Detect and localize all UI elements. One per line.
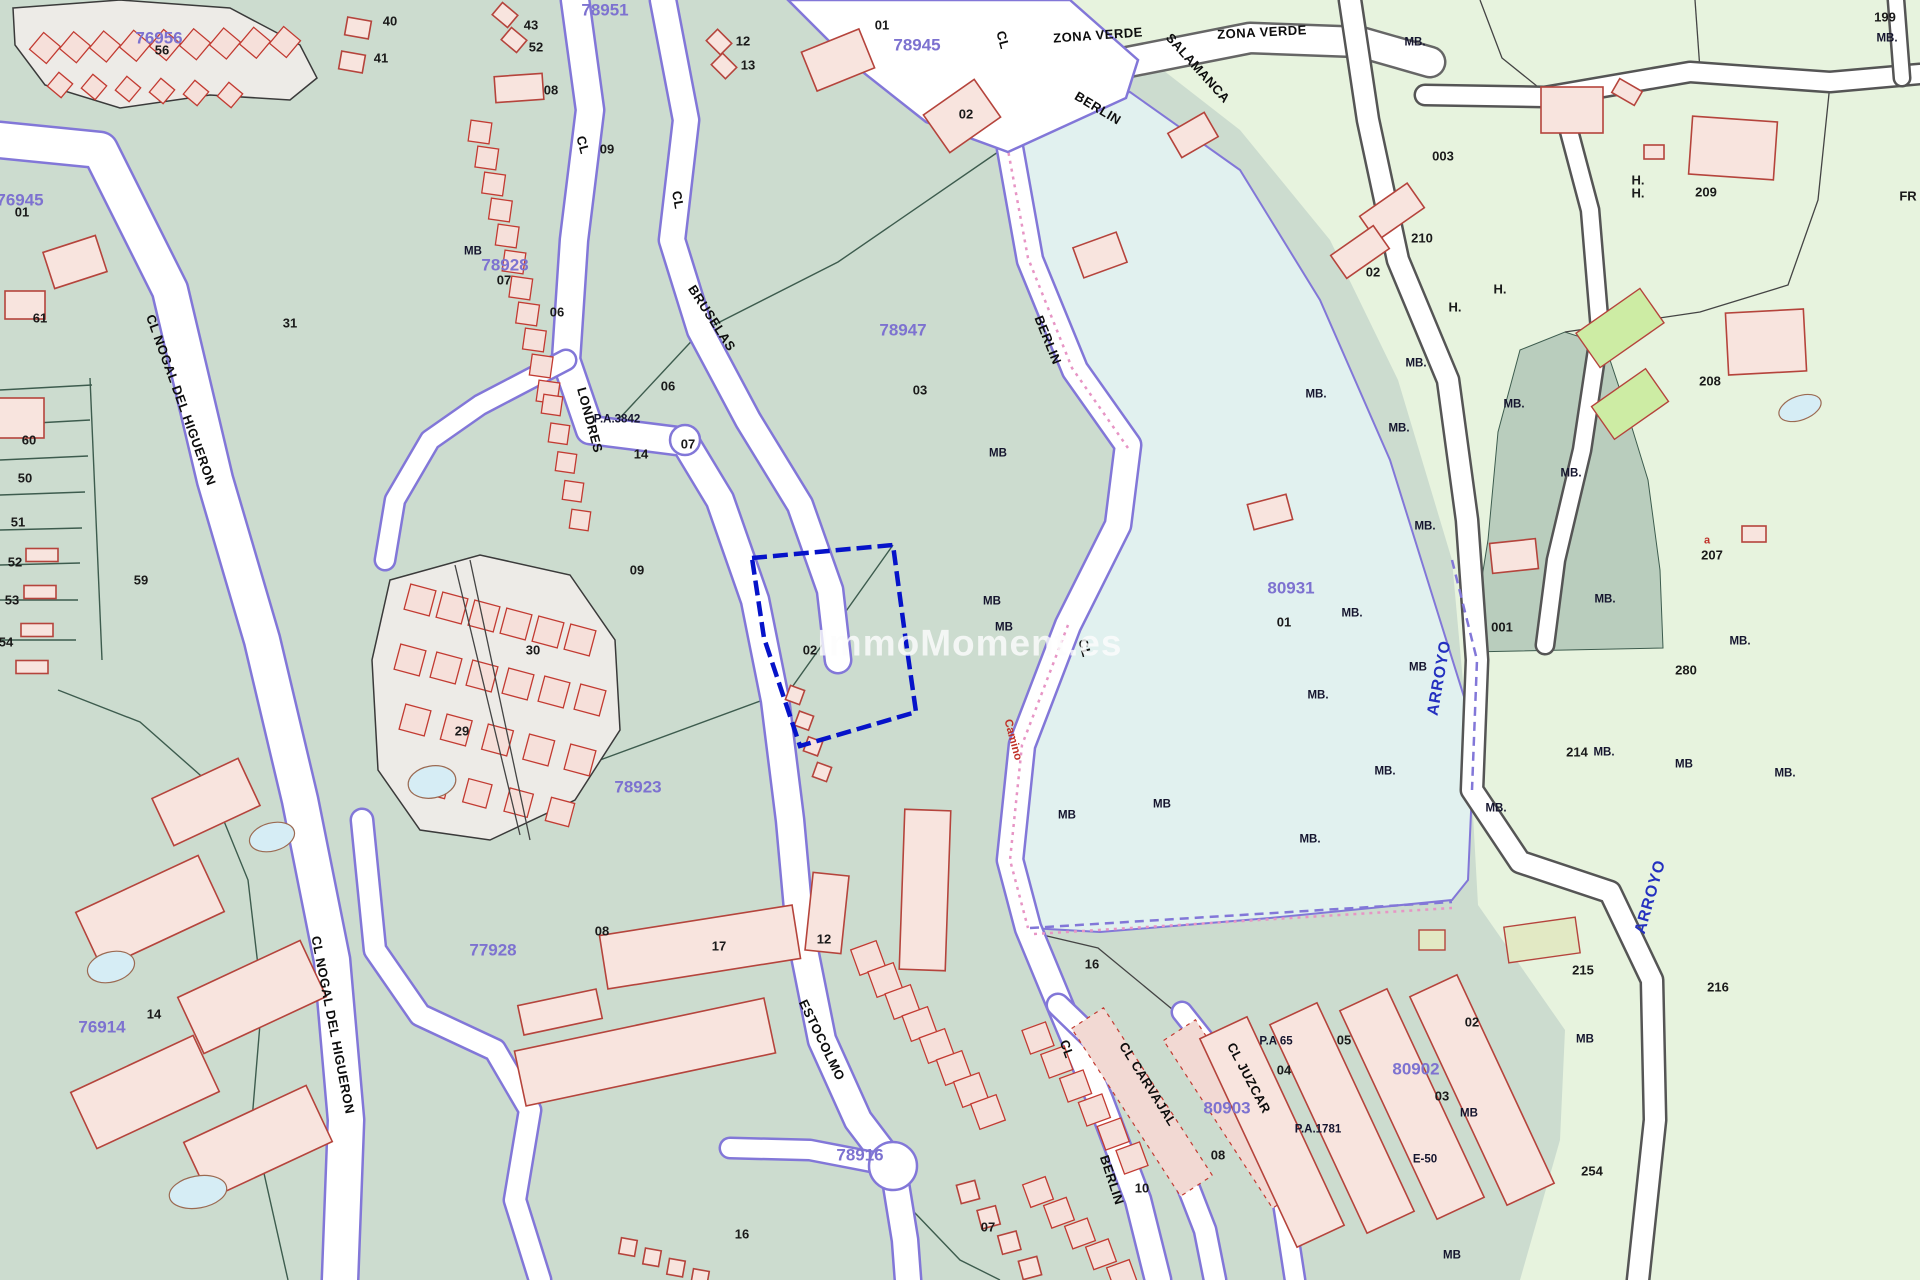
parcel-number-label: MB. xyxy=(1503,399,1524,411)
parcel-number-label: MB. xyxy=(1414,521,1435,533)
parcel-number-label: 54 xyxy=(0,636,13,649)
street-name-label: CL CARVAJAL xyxy=(1117,1040,1179,1128)
parcel-number-label: 215 xyxy=(1572,964,1594,977)
parcel-number-label: MB xyxy=(1058,810,1076,822)
arroyo-label: ARROYO xyxy=(1426,639,1455,717)
watermark: ImmoMoment.es xyxy=(818,625,1123,662)
parcel-number-label: 10 xyxy=(1135,1182,1149,1195)
parcel-number-label: 06 xyxy=(661,380,675,393)
parcel-number-label: MB. xyxy=(1307,690,1328,702)
parcel-number-label: 56 xyxy=(155,44,169,57)
parcel-number-label: 16 xyxy=(1085,958,1099,971)
street-name-label: CL xyxy=(994,29,1011,50)
parcel-number-label: MB xyxy=(983,596,1001,608)
parcel-number-label: 40 xyxy=(383,15,397,28)
parcel-number-label: 30 xyxy=(526,644,540,657)
parcel-number-label: 52 xyxy=(8,556,22,569)
parcel-number-label: 280 xyxy=(1675,664,1697,677)
block-code-label: 77928 xyxy=(469,942,516,959)
parcel-number-label: P.A 65 xyxy=(1259,1036,1292,1048)
parcel-number-label: 06 xyxy=(550,306,564,319)
block-code-label: 80902 xyxy=(1392,1061,1439,1078)
parcel-number-label: MB. xyxy=(1341,608,1362,620)
parcel-number-label: MB. xyxy=(1374,766,1395,778)
parcel-number-label: 08 xyxy=(1211,1149,1225,1162)
parcel-number-label: 07 xyxy=(981,1221,995,1234)
block-code-label: 80931 xyxy=(1267,580,1314,597)
street-name-label: ESTOCOLMO xyxy=(797,998,847,1083)
parcel-number-label: 03 xyxy=(913,384,927,397)
arroyo-label: ARROYO xyxy=(1633,858,1669,936)
street-name-label: SALAMANCA xyxy=(1164,31,1233,105)
street-name-label: BERLIN xyxy=(1098,1154,1126,1207)
parcel-number-label: 214 xyxy=(1566,746,1588,759)
parcel-number-label: MB. xyxy=(1485,803,1506,815)
street-name-label: CL NOGAL DEL HIGUERON xyxy=(144,313,218,488)
parcel-number-label: 01 xyxy=(875,19,889,32)
parcel-number-label: 51 xyxy=(11,516,25,529)
parcel-number-label: P.A.3842 xyxy=(594,414,640,426)
street-name-label: BERLIN xyxy=(1073,89,1124,127)
block-code-label: 80903 xyxy=(1203,1100,1250,1117)
parcel-number-label: 003 xyxy=(1432,150,1454,163)
parcel-number-label: 50 xyxy=(18,472,32,485)
parcel-number-label: 07 xyxy=(681,438,695,451)
parcel-number-label: MB xyxy=(1443,1250,1461,1262)
street-name-label: CL xyxy=(574,134,591,155)
street-name-label: ZONA VERDE xyxy=(1053,25,1143,44)
parcel-number-label: 09 xyxy=(600,143,614,156)
parcel-number-label: MB. xyxy=(1560,468,1581,480)
parcel-number-label: 208 xyxy=(1699,375,1721,388)
parcel-number-label: 61 xyxy=(33,312,47,325)
street-name-label: CL xyxy=(1058,1038,1076,1060)
parcel-number-label: MB xyxy=(1153,799,1171,811)
parcel-number-label: 08 xyxy=(544,84,558,97)
parcel-number-label: MB xyxy=(989,448,1007,460)
parcel-number-label: 13 xyxy=(741,59,755,72)
parcel-number-label: 14 xyxy=(147,1008,161,1021)
parcel-number-label: H. xyxy=(1449,301,1462,314)
parcel-number-label: 53 xyxy=(5,594,19,607)
parcel-number-label: MB. xyxy=(1593,747,1614,759)
parcel-number-label: 52 xyxy=(529,41,543,54)
parcel-number-label: MB xyxy=(1675,759,1693,771)
parcel-number-label: 41 xyxy=(374,52,388,65)
parcel-number-label: 12 xyxy=(736,35,750,48)
parcel-number-label: MB. xyxy=(1305,389,1326,401)
parcel-number-label: 254 xyxy=(1581,1165,1603,1178)
parcel-number-label: 03 xyxy=(1435,1090,1449,1103)
parcel-number-label: 07 xyxy=(497,274,511,287)
parcel-number-label: 01 xyxy=(1277,616,1291,629)
parcel-number-label: 210 xyxy=(1411,232,1433,245)
street-name-label: CL xyxy=(670,190,686,210)
parcel-number-label: 05 xyxy=(1337,1034,1351,1047)
block-code-label: 76914 xyxy=(78,1019,125,1036)
street-name-label: BRUSELAS xyxy=(686,283,738,353)
parcel-number-label: 01 xyxy=(15,206,29,219)
parcel-number-label: 02 xyxy=(1366,266,1380,279)
parcel-number-label: H. xyxy=(1632,187,1645,200)
street-name-label: BERLIN xyxy=(1032,314,1063,367)
parcel-number-label: MB. xyxy=(1594,594,1615,606)
block-code-label: 78928 xyxy=(481,257,528,274)
parcel-number-label: MB. xyxy=(1404,37,1425,49)
parcel-number-label: P.A.1781 xyxy=(1295,1124,1341,1136)
parcel-number-label: H. xyxy=(1494,283,1507,296)
parcel-number-label: MB. xyxy=(1774,768,1795,780)
parcel-number-label: MB xyxy=(1460,1108,1478,1120)
parcel-number-label: 31 xyxy=(283,317,297,330)
camino-label: Camino xyxy=(1001,718,1023,762)
parcel-number-label: 216 xyxy=(1707,981,1729,994)
parcel-number-label: MB. xyxy=(1299,834,1320,846)
parcel-number-label: a xyxy=(1704,536,1710,547)
parcel-number-label: 09 xyxy=(630,564,644,577)
parcel-number-label: 02 xyxy=(1465,1016,1479,1029)
parcel-number-label: 209 xyxy=(1695,186,1717,199)
parcel-number-label: E-50 xyxy=(1413,1154,1437,1166)
parcel-number-label: 17 xyxy=(712,940,726,953)
parcel-number-label: 207 xyxy=(1701,549,1723,562)
parcel-number-label: 02 xyxy=(803,644,817,657)
parcel-number-label: 14 xyxy=(634,448,648,461)
parcel-number-label: 59 xyxy=(134,574,148,587)
parcel-number-label: 12 xyxy=(817,933,831,946)
street-name-label: ZONA VERDE xyxy=(1217,23,1307,41)
block-code-label: 78945 xyxy=(893,37,940,54)
parcel-number-label: 60 xyxy=(22,434,36,447)
parcel-number-label: 08 xyxy=(595,925,609,938)
parcel-number-label: 02 xyxy=(959,108,973,121)
parcel-number-label: MB xyxy=(1409,662,1427,674)
block-code-label: 78916 xyxy=(836,1147,883,1164)
cadastral-map-viewport: 7695676945789517894578947789287892377928… xyxy=(0,0,1920,1280)
parcel-number-label: 001 xyxy=(1491,621,1513,634)
parcel-number-label: FR xyxy=(1899,190,1916,203)
parcel-number-label: MB. xyxy=(1405,358,1426,370)
parcel-number-label: MB. xyxy=(1388,423,1409,435)
parcel-number-label: MB xyxy=(1576,1034,1594,1046)
parcel-number-label: MB xyxy=(464,246,482,258)
parcel-number-label: 43 xyxy=(524,19,538,32)
parcel-number-label: 04 xyxy=(1277,1064,1291,1077)
block-code-label: 78951 xyxy=(581,2,628,19)
parcel-number-label: MB. xyxy=(1729,636,1750,648)
parcel-number-label: MB. xyxy=(1876,33,1897,45)
parcel-number-label: 16 xyxy=(735,1228,749,1241)
street-name-label: CL NOGAL DEL HIGUERON xyxy=(309,935,356,1115)
parcel-number-label: 29 xyxy=(455,725,469,738)
block-code-label: 78947 xyxy=(879,322,926,339)
block-code-label: 78923 xyxy=(614,779,661,796)
parcel-number-label: 199 xyxy=(1874,11,1896,24)
